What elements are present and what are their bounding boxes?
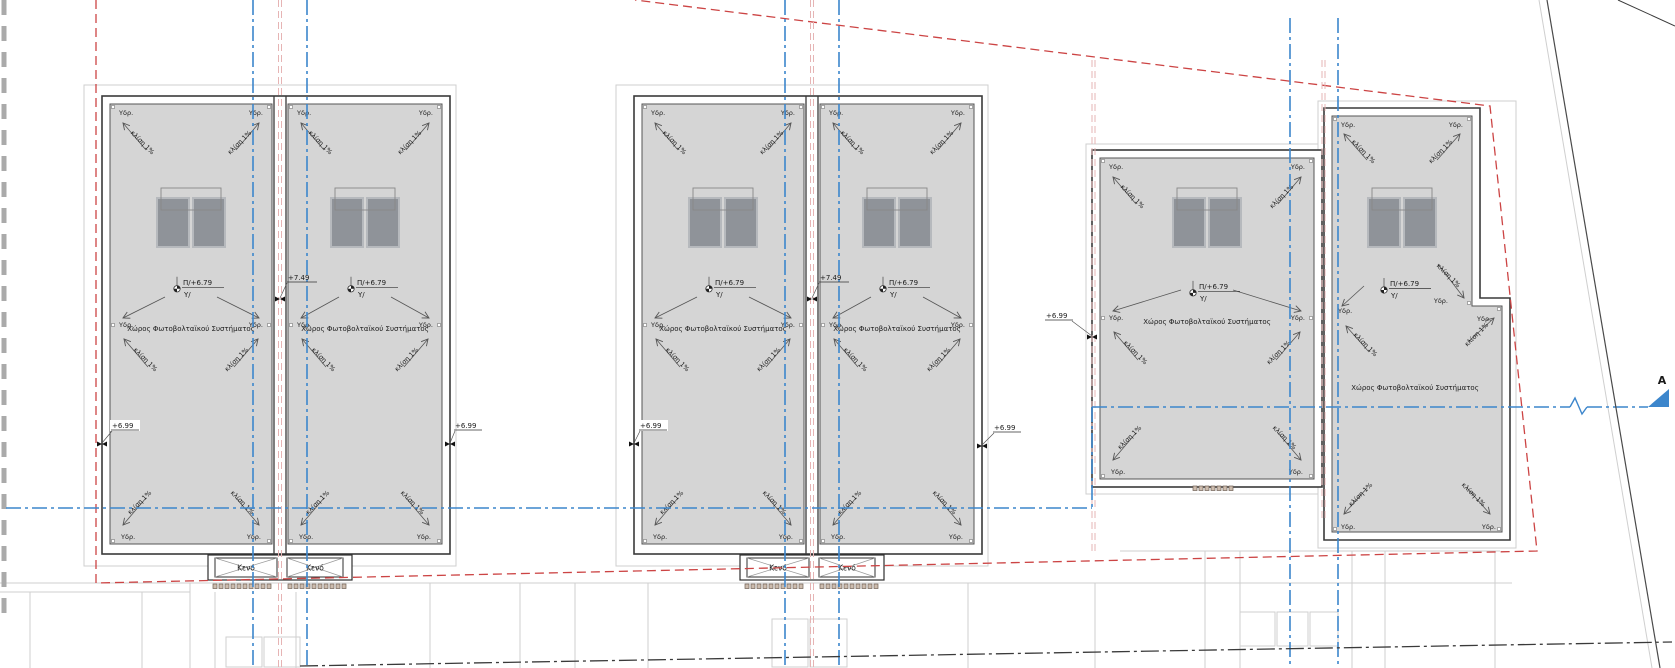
roof-elevation-sub-label: Υ/	[889, 291, 897, 299]
pv-panel	[689, 198, 721, 247]
roof-R4: Υδρ.Υδρ.Υδρ.Υδρ.Υδρ.Υδρ.κλίση 1%κλίση 1%…	[820, 104, 974, 544]
building-B2: Υδρ.Υδρ.Υδρ.Υδρ.Υδρ.Υδρ.κλίση 1%κλίση 1%…	[634, 96, 982, 554]
roof-plan-svg: Υδρ.Υδρ.Υδρ.Υδρ.Υδρ.Υδρ.κλίση 1%κλίση 1%…	[0, 0, 1675, 668]
pv-panel	[899, 198, 931, 247]
drain-label: Υδρ.	[830, 533, 845, 541]
drain-dot	[112, 540, 115, 543]
pv-panel	[157, 198, 189, 247]
roof-area	[642, 104, 804, 544]
light-box	[810, 619, 847, 667]
drain-dot	[970, 106, 973, 109]
drain-label: Υδρ.	[418, 109, 433, 117]
drain-dot	[644, 540, 647, 543]
slab-level-label: +6.99	[455, 422, 476, 430]
pv-space-label: Χώρος Φωτοβολταϊκού Συστήματος	[833, 325, 961, 333]
drain-dot	[1310, 317, 1313, 320]
drain-label: Υδρ.	[1340, 121, 1355, 129]
pv-space-label: Χώρος Φωτοβολταϊκού Συστήματος	[659, 325, 787, 333]
drain-dot	[112, 106, 115, 109]
drain-label: Υδρ.	[120, 533, 135, 541]
hatch-square	[219, 584, 223, 589]
drain-label: Υδρ.	[1481, 523, 1496, 531]
drain-dot	[1102, 317, 1105, 320]
drain-label: Υδρ.	[1290, 314, 1305, 322]
drain-dot	[1102, 475, 1105, 478]
hatch-square	[312, 584, 316, 589]
roof-elevation-label: Π/+6.79	[1199, 283, 1228, 291]
pv-panel	[863, 198, 895, 247]
drain-dot	[644, 106, 647, 109]
hatch-square	[288, 584, 292, 589]
drain-label: Υδρ.	[650, 109, 665, 117]
slab-level-label: +6.99	[1046, 312, 1067, 320]
slab-level-label: +6.99	[112, 422, 133, 430]
drain-label: Υδρ.	[1337, 307, 1352, 315]
roof-elevation-sub-label: Υ/	[357, 291, 365, 299]
drain-dot	[1310, 160, 1313, 163]
building-B3: Υδρ.Υδρ.Υδρ.Υδρ.Υδρ.Υδρ.κλίση 1%κλίση 1%…	[1092, 150, 1322, 487]
hatch-square	[751, 584, 755, 589]
drain-dot	[1498, 308, 1501, 311]
section-break-squiggle	[1570, 398, 1587, 414]
roof-elevation-label: Π/+6.79	[183, 279, 212, 287]
hatch-square	[826, 584, 830, 589]
hatch-square	[832, 584, 836, 589]
hatch-square	[225, 584, 229, 589]
building-B4: Υδρ.Υδρ.Υδρ.Υδρ.Υδρ.Υδρ.Υδρ.κλίση 1%κλίσ…	[1324, 108, 1510, 540]
drain-dot	[1468, 302, 1471, 305]
hatch-square	[862, 584, 866, 589]
drain-label: Υδρ.	[948, 533, 963, 541]
parapet-level-label: +7.49	[288, 274, 309, 282]
light-box	[226, 637, 262, 667]
drain-dot	[800, 324, 803, 327]
drain-label: Υδρ.	[1108, 314, 1123, 322]
pv-panel	[331, 198, 363, 247]
hatch-square	[336, 584, 340, 589]
roof-plan-drawing: Υδρ.Υδρ.Υδρ.Υδρ.Υδρ.Υδρ.κλίση 1%κλίση 1%…	[0, 0, 1675, 668]
drain-dot	[1468, 118, 1471, 121]
roof-elevation-sub-label: Υ/	[1390, 292, 1398, 300]
pv-space-label: Χώρος Φωτοβολταϊκού Συστήματος	[127, 325, 255, 333]
drain-dot	[970, 540, 973, 543]
void-container	[740, 555, 884, 580]
building-B1: Υδρ.Υδρ.Υδρ.Υδρ.Υδρ.Υδρ.κλίση 1%κλίση 1%…	[102, 96, 450, 554]
hatch-square	[300, 584, 304, 589]
roof-R5: Υδρ.Υδρ.Υδρ.Υδρ.Υδρ.Υδρ.κλίση 1%κλίση 1%…	[1100, 158, 1314, 479]
drain-label: Υδρ.	[1448, 121, 1463, 129]
road-axis-line	[300, 642, 1672, 666]
hatch-square	[850, 584, 854, 589]
pv-panel	[1209, 198, 1241, 247]
drain-dot	[800, 540, 803, 543]
drain-label: Υδρ.	[1110, 468, 1125, 476]
roof-elevation-sub-label: Υ/	[1199, 295, 1207, 303]
drain-dot	[290, 324, 293, 327]
drain-label: Υδρ.	[118, 109, 133, 117]
hatch-square	[799, 584, 803, 589]
hatch-square	[844, 584, 848, 589]
void-container	[208, 555, 352, 580]
pv-space-label: Χώρος Φωτοβολταϊκού Συστήματος	[1143, 318, 1271, 326]
drain-label: Υδρ.	[1108, 163, 1123, 171]
hatch-square	[342, 584, 346, 589]
buildings: Υδρ.Υδρ.Υδρ.Υδρ.Υδρ.Υδρ.κλίση 1%κλίση 1%…	[102, 96, 1510, 554]
pv-panel	[1404, 198, 1436, 247]
hatch-square	[856, 584, 860, 589]
section-marker-triangle	[1648, 389, 1669, 407]
hatch-square	[255, 584, 259, 589]
roof-elevation-label: Π/+6.79	[889, 279, 918, 287]
hatch-square	[243, 584, 247, 589]
hatch-square	[1205, 486, 1209, 491]
drain-label: Υδρ.	[950, 109, 965, 117]
light-box	[1310, 612, 1338, 646]
drain-label: Υδρ.	[652, 533, 667, 541]
drain-dot	[268, 106, 271, 109]
drain-dot	[438, 106, 441, 109]
hatch-square	[745, 584, 749, 589]
pv-space-label: Χώρος Φωτοβολταϊκού Συστήματος	[1351, 384, 1479, 392]
drain-label: Υδρ.	[1433, 297, 1448, 305]
roof-elevation-label: Π/+6.79	[715, 279, 744, 287]
drain-label: Υδρ.	[780, 109, 795, 117]
roof-elevation-sub-label: Υ/	[715, 291, 723, 299]
hatch-square	[267, 584, 271, 589]
drain-dot	[970, 324, 973, 327]
roof-R1: Υδρ.Υδρ.Υδρ.Υδρ.Υδρ.Υδρ.κλίση 1%κλίση 1%…	[110, 104, 272, 544]
drain-dot	[800, 106, 803, 109]
hatch-square	[294, 584, 298, 589]
plot-boundary-light	[1539, 0, 1652, 668]
hatch-square	[318, 584, 322, 589]
drain-dot	[822, 106, 825, 109]
slab-level-label: +6.99	[640, 422, 661, 430]
drain-dot	[822, 324, 825, 327]
drain-label: Υδρ.	[296, 109, 311, 117]
hatch-square	[1193, 486, 1197, 491]
hatch-square	[868, 584, 872, 589]
light-box	[1277, 612, 1308, 646]
drain-label: Υδρ.	[828, 109, 843, 117]
hatch-square	[237, 584, 241, 589]
roof-elevation-label: Π/+6.79	[1390, 280, 1419, 288]
pv-panel	[193, 198, 225, 247]
drain-dot	[644, 324, 647, 327]
hatch-square	[1223, 486, 1227, 491]
drain-label: Υδρ.	[298, 533, 313, 541]
slab-level-label: +6.99	[994, 424, 1015, 432]
leader-line	[1072, 321, 1092, 336]
hatch-square	[763, 584, 767, 589]
drain-dot	[268, 540, 271, 543]
light-box	[1240, 612, 1275, 646]
drain-label: Υδρ.	[1340, 523, 1355, 531]
hatch-square	[757, 584, 761, 589]
roof-area	[110, 104, 272, 544]
hatch-square	[324, 584, 328, 589]
drain-dot	[290, 106, 293, 109]
drain-dot	[268, 324, 271, 327]
drain-dot	[1334, 528, 1337, 531]
drain-dot	[112, 324, 115, 327]
hatch-square	[769, 584, 773, 589]
light-box	[772, 619, 808, 667]
roof-R3: Υδρ.Υδρ.Υδρ.Υδρ.Υδρ.Υδρ.κλίση 1%κλίση 1%…	[642, 104, 804, 544]
void-boxes: ΚενόΚενόΚενόΚενό	[208, 555, 884, 580]
hatch-square	[1229, 486, 1233, 491]
pv-panel	[1173, 198, 1205, 247]
pv-panel	[367, 198, 399, 247]
pv-panel	[725, 198, 757, 247]
parapet-level-label: +7.49	[820, 274, 841, 282]
drain-dot	[822, 540, 825, 543]
pv-panel	[1368, 198, 1400, 247]
hatch-square	[1211, 486, 1215, 491]
roof-elevation-label: Π/+6.79	[357, 279, 386, 287]
hatch-square	[213, 584, 217, 589]
drain-dot	[1498, 528, 1501, 531]
drain-dot	[438, 324, 441, 327]
drain-dot	[290, 540, 293, 543]
corner-boundary	[1618, 0, 1675, 26]
hatch-square	[261, 584, 265, 589]
hatch-square	[793, 584, 797, 589]
section-marker-label: A	[1658, 374, 1667, 387]
hatch-square	[1199, 486, 1203, 491]
plot-boundary-dark	[1547, 0, 1660, 668]
hatch-square	[787, 584, 791, 589]
pv-space-label: Χώρος Φωτοβολταϊκού Συστήματος	[301, 325, 429, 333]
roof-R2: Υδρ.Υδρ.Υδρ.Υδρ.Υδρ.Υδρ.κλίση 1%κλίση 1%…	[288, 104, 442, 544]
hatch-square	[231, 584, 235, 589]
hatch-square	[820, 584, 824, 589]
drain-dot	[1334, 118, 1337, 121]
drain-label: Υδρ.	[1290, 163, 1305, 171]
hatch-square	[775, 584, 779, 589]
drain-dot	[1102, 160, 1105, 163]
void-label: Κενό	[306, 564, 324, 573]
drain-label: Υδρ.	[248, 109, 263, 117]
drain-dot	[1310, 475, 1313, 478]
hatch-square	[1217, 486, 1221, 491]
drain-dot	[438, 540, 441, 543]
drain-label: Υδρ.	[416, 533, 431, 541]
void-label: Κενό	[838, 564, 856, 573]
hatch-square	[874, 584, 878, 589]
roof-elevation-sub-label: Υ/	[183, 291, 191, 299]
hatch-square	[330, 584, 334, 589]
